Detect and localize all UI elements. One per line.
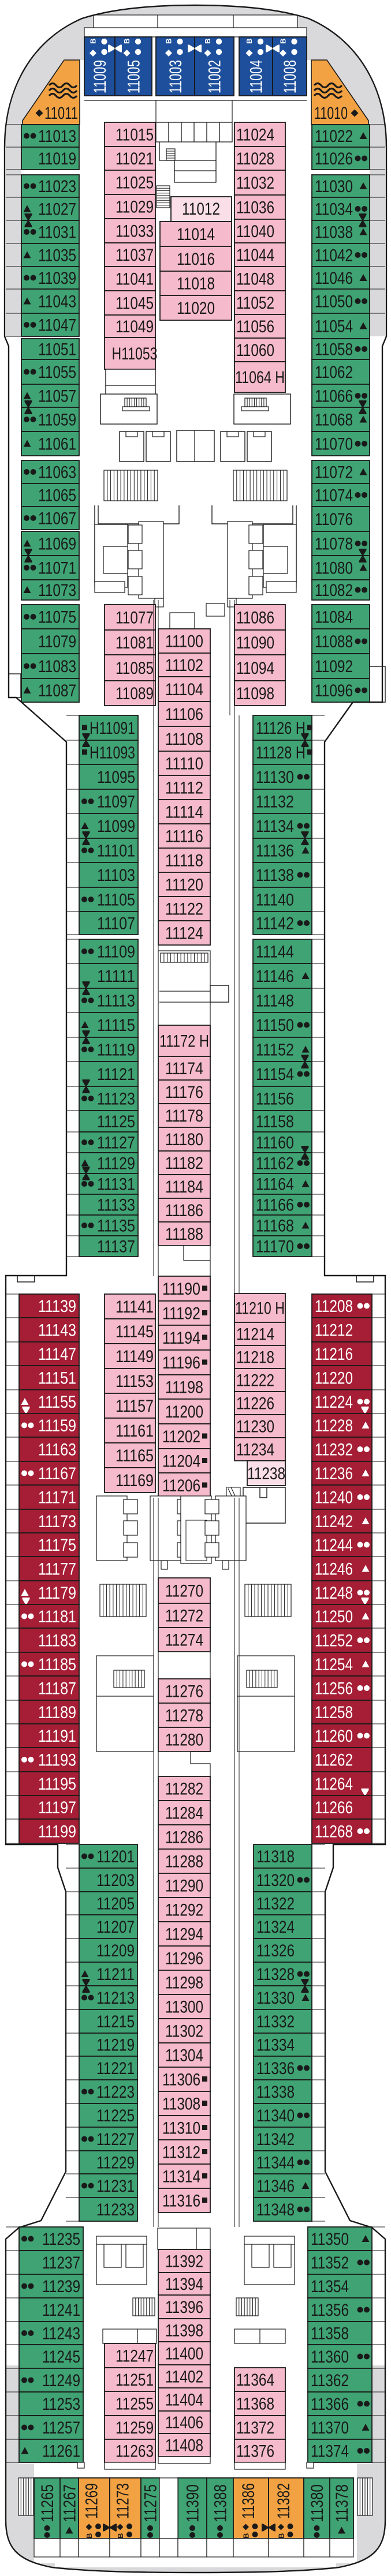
svg-text:11302: 11302 <box>165 2022 203 2041</box>
svg-text:11318: 11318 <box>256 1847 295 1866</box>
svg-text:11248: 11248 <box>315 1584 353 1603</box>
svg-text:11178: 11178 <box>165 1107 203 1126</box>
svg-text:11209: 11209 <box>96 1941 135 1960</box>
svg-text:11208: 11208 <box>315 1297 353 1316</box>
svg-text:11386: 11386 <box>239 2483 258 2519</box>
svg-text:11320: 11320 <box>256 1871 295 1890</box>
svg-text:11016: 11016 <box>177 250 215 269</box>
svg-text:B: B <box>277 2533 286 2538</box>
svg-text:11215: 11215 <box>96 2012 135 2031</box>
svg-text:11056: 11056 <box>236 317 274 336</box>
svg-text:11225: 11225 <box>96 2106 135 2125</box>
svg-text:11131: 11131 <box>97 1175 135 1194</box>
svg-text:11114: 11114 <box>165 803 203 822</box>
svg-text:11274: 11274 <box>165 1631 203 1650</box>
svg-text:11054: 11054 <box>315 317 353 336</box>
svg-text:11132: 11132 <box>256 793 294 812</box>
svg-text:11136: 11136 <box>256 842 294 861</box>
svg-text:11264: 11264 <box>315 1775 353 1794</box>
svg-text:11245: 11245 <box>42 2348 80 2367</box>
svg-text:11199: 11199 <box>38 1823 76 1842</box>
svg-text:11072: 11072 <box>315 463 353 482</box>
svg-text:11360: 11360 <box>311 2348 349 2367</box>
svg-text:11038: 11038 <box>315 223 353 242</box>
svg-text:11111: 11111 <box>97 967 135 986</box>
svg-text:11288: 11288 <box>165 1853 203 1872</box>
svg-text:11380: 11380 <box>308 2484 327 2522</box>
svg-text:11171: 11171 <box>38 1488 76 1508</box>
svg-text:11010: 11010 <box>314 104 348 123</box>
svg-text:11292: 11292 <box>165 1901 203 1920</box>
svg-text:11089: 11089 <box>116 684 154 703</box>
svg-text:11268: 11268 <box>315 1823 353 1842</box>
svg-text:11220: 11220 <box>315 1369 353 1388</box>
svg-text:11028: 11028 <box>236 149 274 168</box>
svg-text:11084: 11084 <box>315 608 353 627</box>
svg-text:11137: 11137 <box>97 1238 135 1257</box>
svg-text:11051: 11051 <box>38 340 76 359</box>
svg-text:B: B <box>203 39 212 44</box>
svg-text:11195: 11195 <box>38 1775 76 1794</box>
svg-text:11025: 11025 <box>116 174 154 193</box>
svg-text:11260: 11260 <box>315 1727 353 1746</box>
svg-text:11352: 11352 <box>311 2253 349 2273</box>
svg-text:11182: 11182 <box>165 1154 203 1173</box>
svg-text:11128 H: 11128 H <box>256 744 306 763</box>
svg-text:11120: 11120 <box>165 876 203 895</box>
svg-text:11116: 11116 <box>165 827 203 846</box>
svg-text:11049: 11049 <box>116 317 154 336</box>
svg-text:11246: 11246 <box>315 1560 353 1579</box>
svg-text:11334: 11334 <box>256 2036 295 2055</box>
svg-text:11005: 11005 <box>125 60 144 93</box>
svg-text:11149: 11149 <box>116 1347 154 1366</box>
svg-text:11226: 11226 <box>236 1394 274 1413</box>
svg-text:11048: 11048 <box>236 270 274 289</box>
svg-text:11094: 11094 <box>236 659 274 678</box>
svg-text:11122: 11122 <box>165 900 203 919</box>
svg-text:11201: 11201 <box>96 1847 135 1866</box>
svg-text:11342: 11342 <box>256 2130 295 2149</box>
svg-text:11179: 11179 <box>38 1584 76 1603</box>
svg-text:11300: 11300 <box>165 1998 203 2017</box>
svg-text:11011: 11011 <box>44 104 78 123</box>
svg-text:11150: 11150 <box>256 1016 294 1035</box>
svg-text:11107: 11107 <box>97 914 135 933</box>
svg-text:11040: 11040 <box>236 222 274 241</box>
svg-text:11181: 11181 <box>38 1607 76 1626</box>
svg-text:11071: 11071 <box>38 559 76 578</box>
svg-text:11261: 11261 <box>42 2442 80 2461</box>
svg-text:11408: 11408 <box>165 2436 203 2455</box>
svg-text:11015: 11015 <box>116 126 154 145</box>
svg-text:11138: 11138 <box>256 866 294 885</box>
svg-text:11280: 11280 <box>165 1731 203 1750</box>
svg-text:11043: 11043 <box>38 293 76 312</box>
svg-text:11078: 11078 <box>315 535 353 554</box>
svg-text:B: B <box>245 39 254 44</box>
svg-text:11316: 11316 <box>162 2192 200 2211</box>
svg-text:11176: 11176 <box>165 1083 203 1102</box>
svg-text:11362: 11362 <box>311 2371 349 2390</box>
svg-text:11160: 11160 <box>256 1134 294 1153</box>
svg-text:11376: 11376 <box>236 2442 274 2461</box>
svg-text:11185: 11185 <box>38 1655 76 1674</box>
svg-text:11233: 11233 <box>96 2200 135 2219</box>
svg-text:11372: 11372 <box>236 2418 274 2438</box>
svg-text:11251: 11251 <box>116 2371 154 2390</box>
svg-text:11002: 11002 <box>206 60 225 93</box>
svg-text:11191: 11191 <box>38 1727 76 1746</box>
svg-text:11378: 11378 <box>333 2484 352 2522</box>
svg-text:11076: 11076 <box>315 510 353 529</box>
svg-text:11064 H: 11064 H <box>235 368 285 387</box>
svg-text:11009: 11009 <box>91 60 110 93</box>
svg-text:11250: 11250 <box>315 1607 353 1626</box>
svg-text:11265: 11265 <box>38 2484 57 2522</box>
svg-text:11354: 11354 <box>311 2277 349 2296</box>
svg-text:11193: 11193 <box>38 1751 76 1770</box>
svg-text:11227: 11227 <box>96 2130 135 2149</box>
svg-text:11219: 11219 <box>96 2036 135 2055</box>
svg-text:11155: 11155 <box>38 1393 76 1412</box>
svg-text:11021: 11021 <box>116 149 154 168</box>
svg-text:11031: 11031 <box>38 223 76 242</box>
svg-text:11284: 11284 <box>165 1804 203 1823</box>
svg-text:11095: 11095 <box>97 768 135 787</box>
svg-text:11055: 11055 <box>38 363 76 382</box>
svg-text:11109: 11109 <box>97 943 135 962</box>
svg-text:11127: 11127 <box>97 1134 135 1153</box>
svg-text:11286: 11286 <box>165 1828 203 1847</box>
svg-text:11004: 11004 <box>247 60 266 93</box>
svg-text:11203: 11203 <box>96 1871 135 1890</box>
svg-text:11096: 11096 <box>315 681 353 700</box>
svg-text:11070: 11070 <box>315 435 353 454</box>
svg-text:11229: 11229 <box>96 2154 135 2173</box>
svg-text:11205: 11205 <box>96 1895 135 1914</box>
svg-text:11145: 11145 <box>116 1322 154 1341</box>
svg-text:11103: 11103 <box>97 866 135 885</box>
svg-text:11326: 11326 <box>256 1941 295 1960</box>
svg-text:11024: 11024 <box>236 126 274 145</box>
svg-text:11077: 11077 <box>116 609 154 628</box>
svg-text:11194: 11194 <box>162 1329 200 1348</box>
svg-text:11256: 11256 <box>315 1679 353 1698</box>
svg-text:11298: 11298 <box>165 1974 203 1993</box>
svg-text:11168: 11168 <box>256 1217 294 1236</box>
svg-text:11047: 11047 <box>38 316 76 335</box>
svg-text:11330: 11330 <box>256 1989 295 2008</box>
svg-text:11113: 11113 <box>97 992 135 1011</box>
svg-text:11196: 11196 <box>162 1353 200 1373</box>
svg-text:11388: 11388 <box>211 2484 230 2522</box>
svg-text:11198: 11198 <box>165 1378 203 1397</box>
svg-text:11125: 11125 <box>97 1112 135 1131</box>
svg-text:11290: 11290 <box>165 1877 203 1896</box>
svg-text:11152: 11152 <box>256 1041 294 1060</box>
svg-text:11272: 11272 <box>165 1607 203 1626</box>
svg-text:11267: 11267 <box>61 2484 80 2522</box>
svg-text:11097: 11097 <box>97 793 135 812</box>
svg-text:11212: 11212 <box>315 1321 353 1340</box>
svg-text:11218: 11218 <box>236 1348 274 1367</box>
svg-text:11108: 11108 <box>165 730 203 749</box>
svg-text:11214: 11214 <box>236 1325 274 1344</box>
svg-text:11119: 11119 <box>97 1041 135 1060</box>
svg-text:11085: 11085 <box>116 659 154 678</box>
svg-text:11207: 11207 <box>96 1918 135 1937</box>
svg-text:11112: 11112 <box>165 779 203 798</box>
svg-text:11396: 11396 <box>165 2298 203 2317</box>
svg-text:11052: 11052 <box>236 294 274 313</box>
svg-text:11177: 11177 <box>38 1560 76 1579</box>
svg-text:11170: 11170 <box>256 1238 294 1257</box>
svg-text:11324: 11324 <box>256 1918 295 1937</box>
svg-text:B: B <box>279 39 288 44</box>
svg-text:11404: 11404 <box>165 2391 203 2410</box>
svg-text:11206: 11206 <box>162 1476 200 1495</box>
svg-text:11344: 11344 <box>256 2154 295 2173</box>
svg-text:11402: 11402 <box>165 2368 203 2387</box>
svg-text:11234: 11234 <box>236 1441 274 1460</box>
svg-text:11033: 11033 <box>116 222 154 241</box>
svg-text:11231: 11231 <box>96 2177 135 2196</box>
svg-text:11020: 11020 <box>177 299 215 318</box>
svg-text:11146: 11146 <box>256 967 294 986</box>
svg-text:11062: 11062 <box>315 363 353 382</box>
svg-text:11026: 11026 <box>315 149 353 168</box>
svg-text:11086: 11086 <box>236 609 274 628</box>
svg-text:11027: 11027 <box>38 200 76 219</box>
svg-text:11106: 11106 <box>165 705 203 724</box>
svg-text:11358: 11358 <box>311 2324 349 2343</box>
svg-text:11312: 11312 <box>162 2143 200 2162</box>
svg-text:11223: 11223 <box>96 2083 135 2102</box>
svg-text:11083: 11083 <box>38 657 76 676</box>
svg-text:11036: 11036 <box>236 198 274 218</box>
svg-text:11105: 11105 <box>97 891 135 910</box>
svg-text:11189: 11189 <box>38 1703 76 1722</box>
svg-text:11258: 11258 <box>315 1703 353 1722</box>
svg-text:11204: 11204 <box>162 1452 200 1471</box>
svg-text:11080: 11080 <box>315 559 353 578</box>
svg-text:11142: 11142 <box>256 914 294 933</box>
svg-text:11008: 11008 <box>281 60 300 93</box>
svg-text:11050: 11050 <box>315 293 353 312</box>
svg-text:11147: 11147 <box>38 1345 76 1364</box>
svg-text:11045: 11045 <box>116 294 154 313</box>
svg-text:11157: 11157 <box>116 1397 154 1416</box>
svg-text:11118: 11118 <box>165 852 203 871</box>
svg-text:11257: 11257 <box>42 2418 80 2438</box>
svg-text:11400: 11400 <box>165 2345 203 2364</box>
svg-text:11081: 11081 <box>116 633 154 653</box>
svg-text:11350: 11350 <box>311 2230 349 2249</box>
svg-text:11166: 11166 <box>256 1196 294 1215</box>
svg-text:11066: 11066 <box>315 387 353 406</box>
svg-text:11099: 11099 <box>97 817 135 836</box>
svg-text:11242: 11242 <box>315 1512 353 1531</box>
svg-text:11356: 11356 <box>311 2301 349 2320</box>
svg-text:11158: 11158 <box>256 1112 294 1131</box>
svg-text:11153: 11153 <box>116 1372 154 1391</box>
svg-text:11228: 11228 <box>315 1416 353 1435</box>
svg-text:11037: 11037 <box>116 246 154 265</box>
svg-text:11101: 11101 <box>97 842 135 861</box>
svg-text:11159: 11159 <box>38 1416 76 1435</box>
svg-text:11382: 11382 <box>274 2483 293 2519</box>
svg-text:B: B <box>85 2533 94 2538</box>
svg-text:11336: 11336 <box>256 2059 295 2078</box>
svg-text:11216: 11216 <box>315 1345 353 1364</box>
svg-text:11276: 11276 <box>165 1682 203 1701</box>
svg-text:11243: 11243 <box>42 2324 80 2343</box>
svg-text:11254: 11254 <box>315 1655 353 1674</box>
svg-text:11014: 11014 <box>177 225 215 244</box>
svg-text:11042: 11042 <box>315 246 353 265</box>
svg-text:11082: 11082 <box>315 581 353 600</box>
svg-text:11162: 11162 <box>256 1154 294 1173</box>
svg-text:11087: 11087 <box>38 681 76 700</box>
svg-text:11058: 11058 <box>315 340 353 359</box>
svg-text:11039: 11039 <box>38 269 76 288</box>
svg-text:11282: 11282 <box>165 1780 203 1799</box>
svg-text:11104: 11104 <box>165 680 203 699</box>
svg-text:11012: 11012 <box>182 200 220 219</box>
svg-text:11224: 11224 <box>315 1393 353 1412</box>
svg-text:11346: 11346 <box>256 2177 295 2196</box>
svg-text:11133: 11133 <box>97 1196 135 1215</box>
svg-text:11121: 11121 <box>97 1065 135 1084</box>
svg-text:11370: 11370 <box>311 2418 349 2438</box>
svg-text:11129: 11129 <box>97 1154 135 1173</box>
svg-text:11029: 11029 <box>116 198 154 217</box>
svg-text:11187: 11187 <box>38 1679 76 1698</box>
svg-text:11259: 11259 <box>116 2418 154 2438</box>
svg-text:11013: 11013 <box>38 127 76 146</box>
svg-text:H11093: H11093 <box>90 744 135 763</box>
svg-text:11278: 11278 <box>165 1707 203 1726</box>
svg-text:11368: 11368 <box>236 2395 274 2414</box>
svg-text:11328: 11328 <box>256 1965 295 1984</box>
svg-text:11211: 11211 <box>96 1965 135 1984</box>
svg-text:11230: 11230 <box>236 1418 274 1437</box>
svg-text:11069: 11069 <box>38 535 76 554</box>
svg-text:11338: 11338 <box>256 2083 295 2102</box>
svg-text:11063: 11063 <box>38 463 76 482</box>
svg-text:11172 H: 11172 H <box>159 1032 209 1051</box>
svg-text:11148: 11148 <box>256 992 294 1011</box>
svg-text:11263: 11263 <box>116 2442 154 2461</box>
svg-text:11294: 11294 <box>165 1925 203 1944</box>
svg-text:11273: 11273 <box>114 2483 133 2519</box>
svg-text:11065: 11065 <box>38 486 76 505</box>
svg-text:11073: 11073 <box>38 581 76 600</box>
svg-text:11210 H: 11210 H <box>235 1299 285 1318</box>
svg-text:11244: 11244 <box>315 1536 353 1555</box>
svg-text:11061: 11061 <box>38 435 76 454</box>
svg-text:11184: 11184 <box>165 1178 203 1197</box>
svg-text:11102: 11102 <box>165 656 203 675</box>
svg-text:11366: 11366 <box>311 2395 349 2414</box>
svg-text:11308: 11308 <box>162 2095 200 2114</box>
svg-text:11252: 11252 <box>315 1632 353 1651</box>
svg-text:11222: 11222 <box>236 1371 274 1390</box>
svg-text:11134: 11134 <box>256 817 294 836</box>
svg-text:11154: 11154 <box>256 1065 294 1084</box>
svg-text:H11091: H11091 <box>90 719 135 738</box>
svg-text:11235: 11235 <box>42 2230 80 2249</box>
svg-text:11090: 11090 <box>236 633 274 653</box>
svg-text:11088: 11088 <box>315 632 353 651</box>
svg-text:11253: 11253 <box>42 2395 80 2414</box>
svg-text:11057: 11057 <box>38 387 76 406</box>
svg-text:11180: 11180 <box>165 1130 203 1149</box>
svg-text:11130: 11130 <box>256 768 294 787</box>
svg-text:11100: 11100 <box>165 632 203 651</box>
svg-text:11310: 11310 <box>162 2119 200 2138</box>
svg-text:11034: 11034 <box>315 200 353 219</box>
svg-text:11019: 11019 <box>38 149 76 168</box>
svg-text:11270: 11270 <box>165 1582 203 1601</box>
svg-text:11190: 11190 <box>162 1280 200 1299</box>
svg-text:11139: 11139 <box>38 1297 76 1316</box>
svg-text:11035: 11035 <box>38 246 76 265</box>
svg-text:11110: 11110 <box>165 755 203 774</box>
svg-text:11269: 11269 <box>83 2483 102 2519</box>
svg-text:11241: 11241 <box>42 2301 80 2320</box>
svg-text:11200: 11200 <box>165 1403 203 1422</box>
svg-text:11232: 11232 <box>315 1441 353 1460</box>
svg-text:11164: 11164 <box>256 1175 294 1194</box>
svg-text:11306: 11306 <box>162 2071 200 2090</box>
svg-text:11156: 11156 <box>256 1090 294 1109</box>
svg-text:B: B <box>242 2533 251 2538</box>
svg-text:11322: 11322 <box>256 1895 295 1914</box>
svg-text:B: B <box>165 39 173 44</box>
svg-text:11163: 11163 <box>38 1441 76 1460</box>
svg-text:11115: 11115 <box>97 1016 135 1035</box>
svg-text:11202: 11202 <box>162 1427 200 1446</box>
svg-text:11188: 11188 <box>165 1225 203 1244</box>
svg-text:11394: 11394 <box>165 2275 203 2294</box>
svg-text:11186: 11186 <box>165 1201 203 1220</box>
svg-text:11046: 11046 <box>315 269 353 288</box>
svg-text:11249: 11249 <box>42 2371 80 2390</box>
svg-text:11213: 11213 <box>96 1989 135 2008</box>
svg-text:11398: 11398 <box>165 2322 203 2341</box>
svg-text:11135: 11135 <box>97 1217 135 1236</box>
svg-text:11141: 11141 <box>116 1298 154 1317</box>
svg-text:11074: 11074 <box>315 486 353 505</box>
svg-text:11255: 11255 <box>116 2395 154 2414</box>
svg-text:11165: 11165 <box>116 1446 154 1465</box>
svg-text:11003: 11003 <box>166 60 185 93</box>
svg-text:11018: 11018 <box>177 275 215 294</box>
svg-text:11406: 11406 <box>165 2413 203 2432</box>
svg-text:11262: 11262 <box>315 1751 353 1770</box>
svg-text:11068: 11068 <box>315 411 353 430</box>
svg-text:11183: 11183 <box>38 1632 76 1651</box>
svg-text:11167: 11167 <box>38 1464 76 1483</box>
svg-text:11192: 11192 <box>162 1304 200 1323</box>
svg-text:11332: 11332 <box>256 2012 295 2031</box>
svg-text:11079: 11079 <box>38 632 76 651</box>
svg-text:11075: 11075 <box>38 608 76 627</box>
svg-text:11022: 11022 <box>315 127 353 146</box>
svg-text:11237: 11237 <box>42 2253 80 2273</box>
